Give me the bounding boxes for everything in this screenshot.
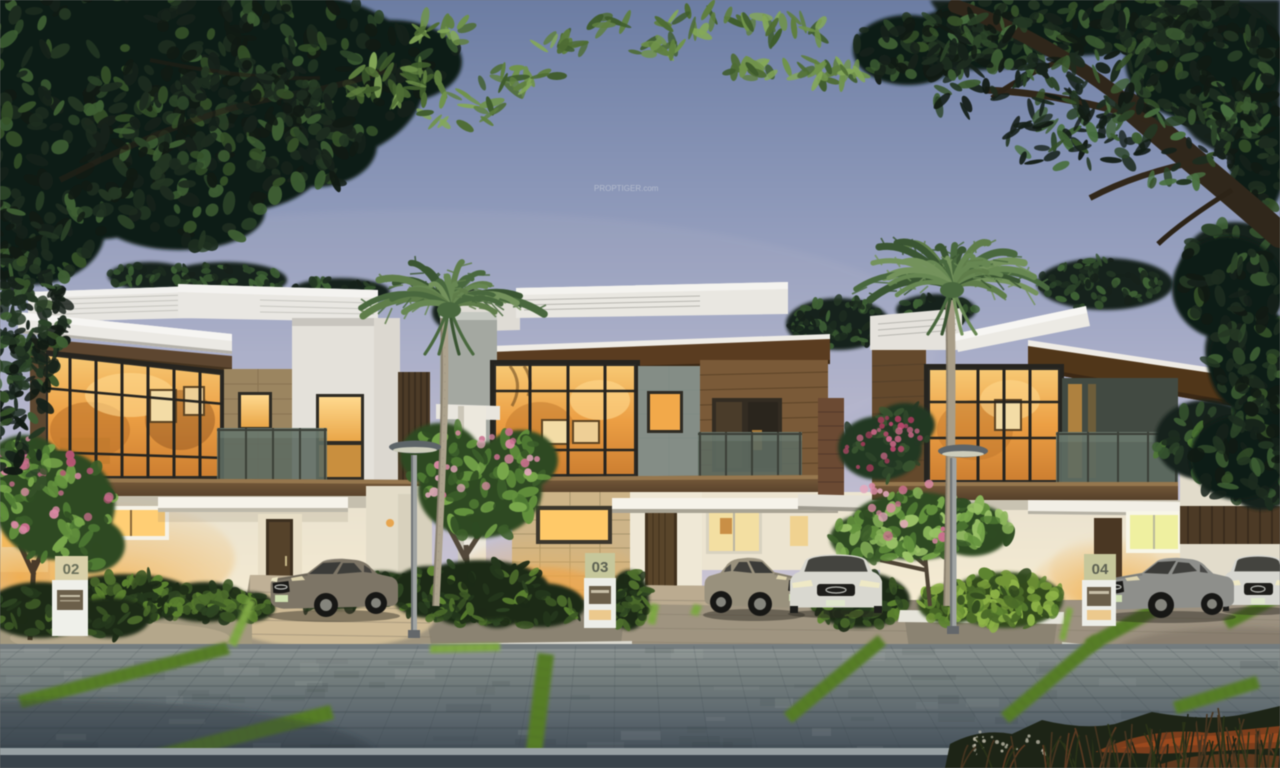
svg-text:PROPTIGER.com: PROPTIGER.com [594, 184, 659, 193]
svg-text:02: 02 [63, 561, 80, 578]
svg-text:04: 04 [1092, 561, 1109, 578]
svg-text:03: 03 [592, 559, 609, 576]
